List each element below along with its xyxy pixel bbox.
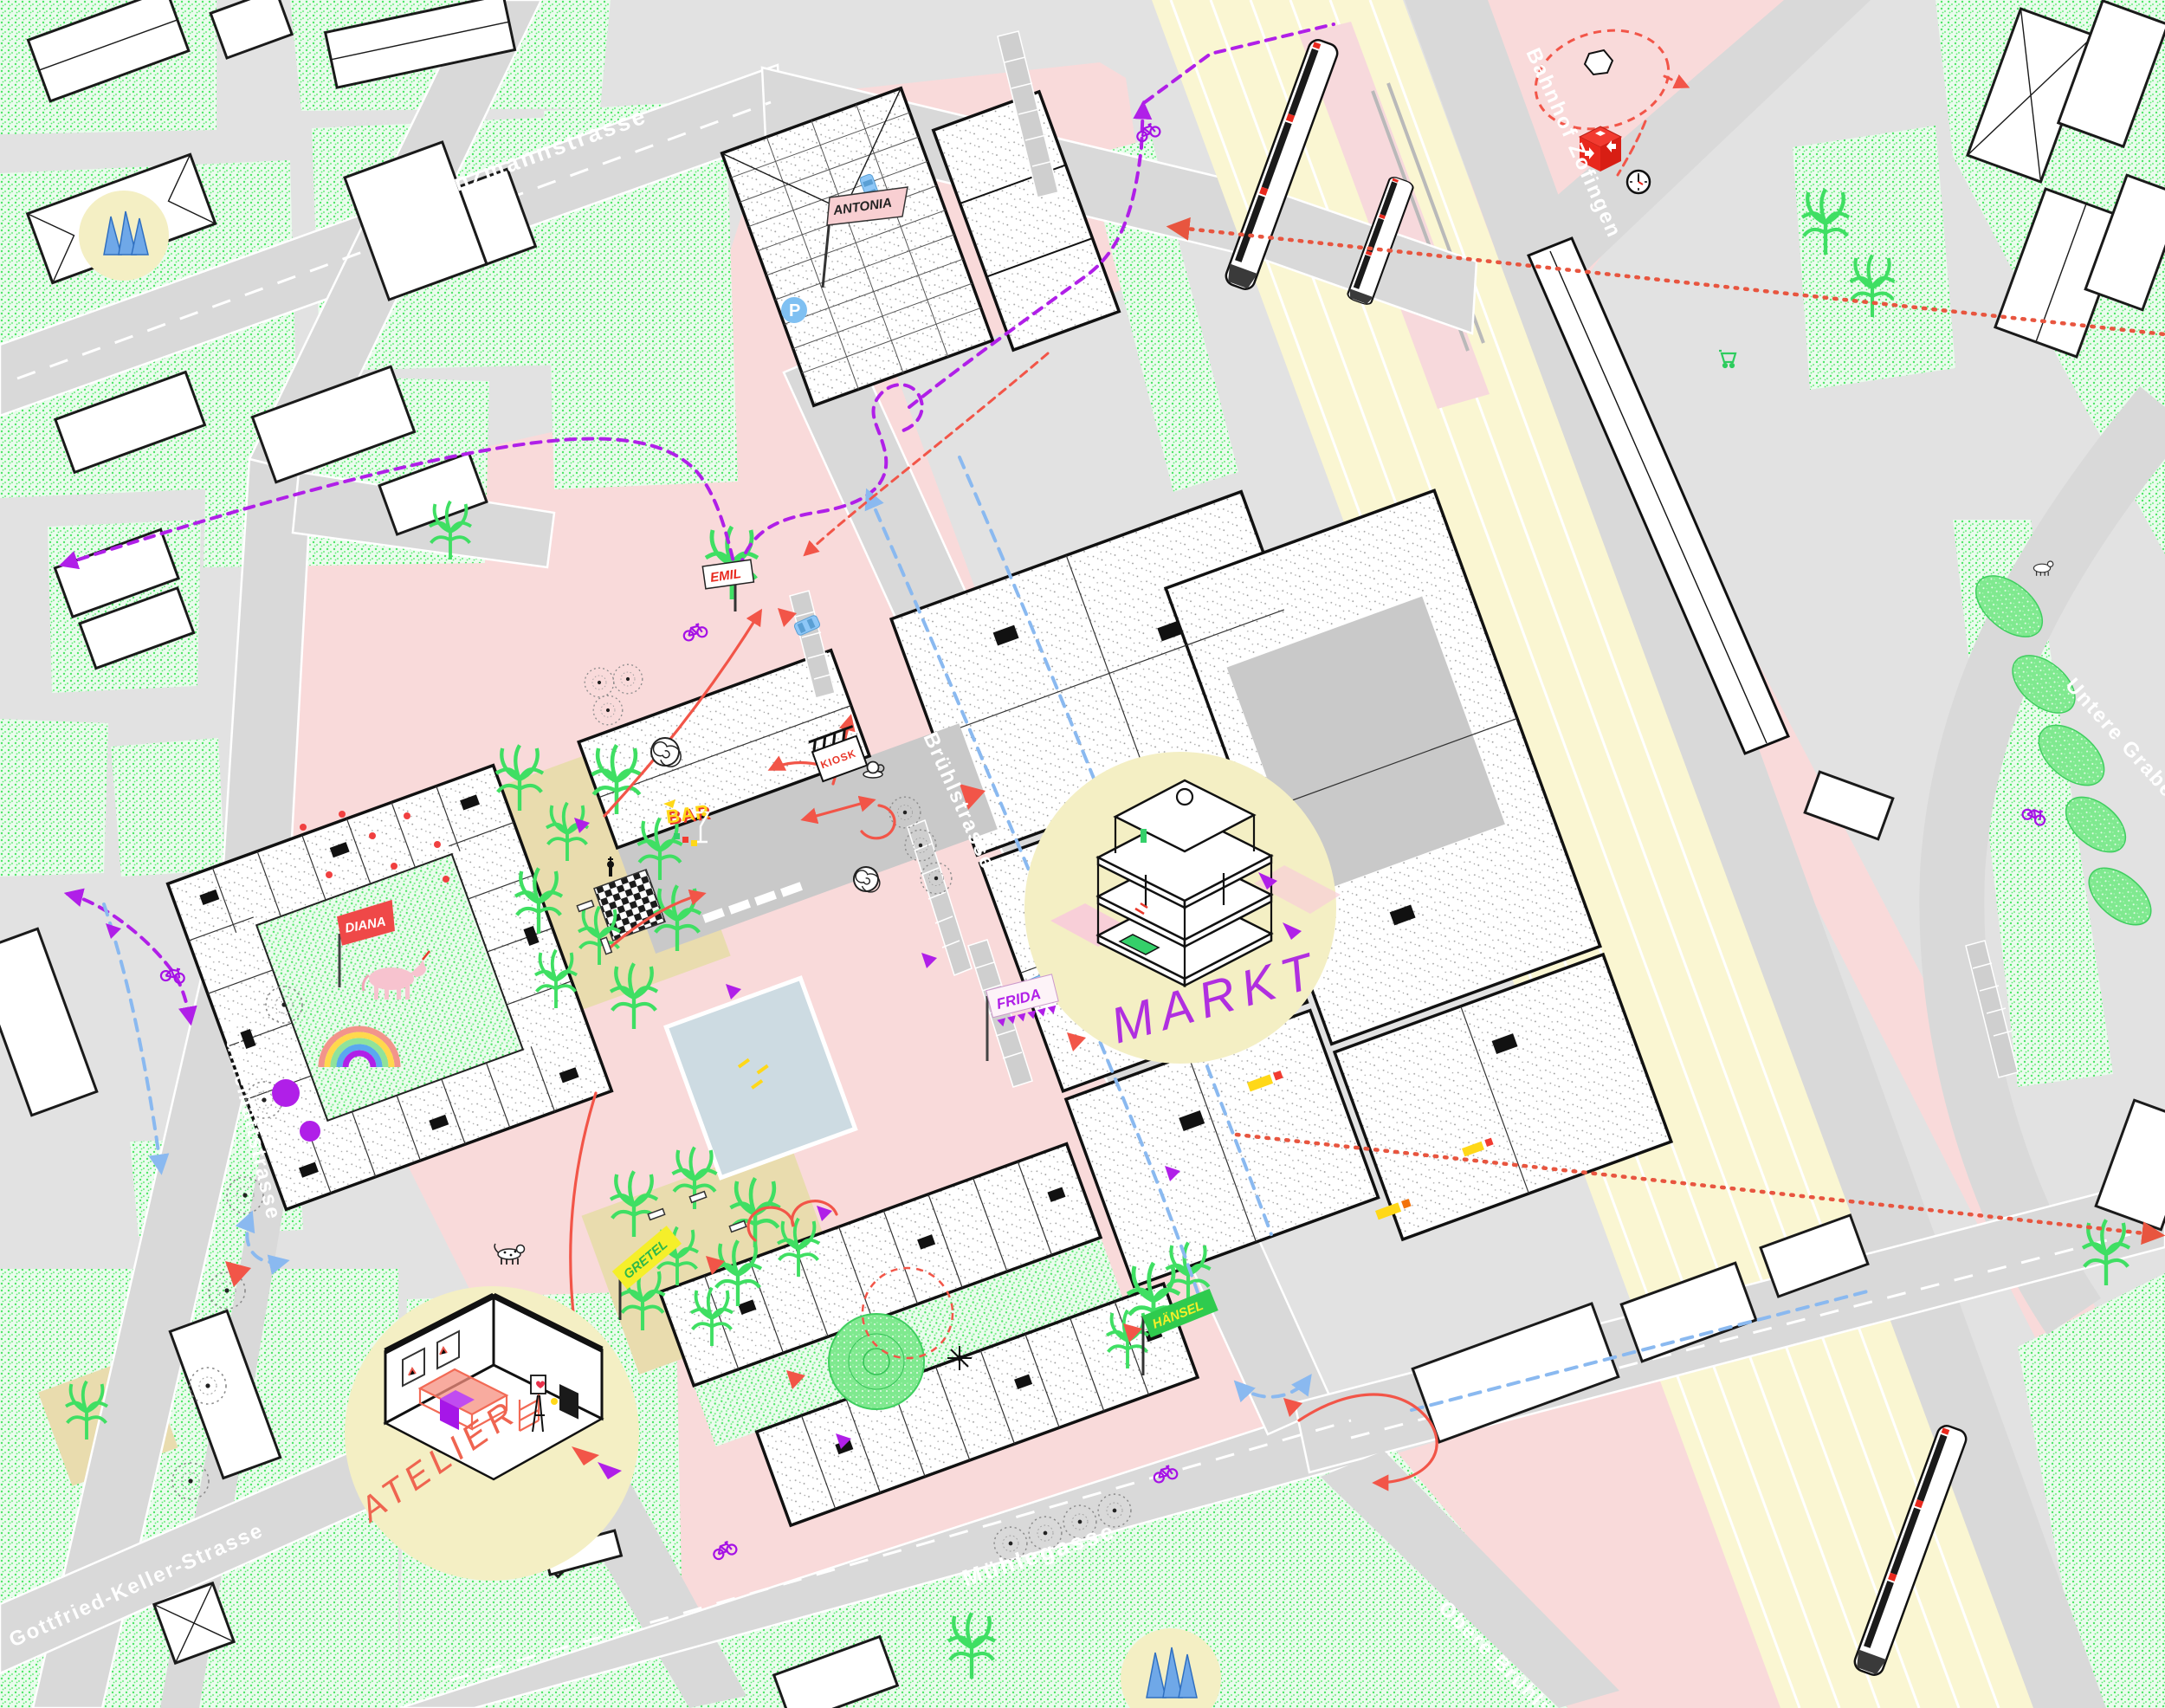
parking-badge: P xyxy=(781,297,807,323)
atelier-vignette: ATELIER xyxy=(345,1286,639,1581)
big-courtyard-tree xyxy=(829,1314,924,1409)
station-clock-icon xyxy=(1627,171,1650,193)
parking-label: P xyxy=(789,301,800,320)
site-plan-map: KIOSK BAR BAR P xyxy=(0,0,2165,1708)
sculpture-spot-nw xyxy=(79,191,169,281)
